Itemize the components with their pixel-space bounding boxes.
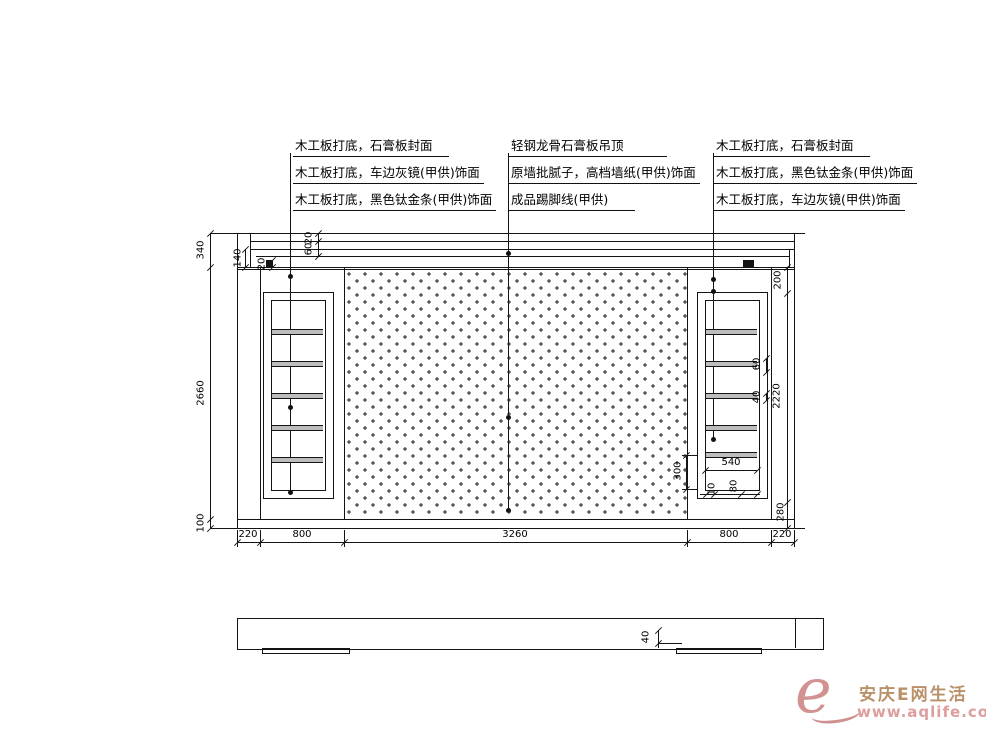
titanium-strip-bar — [272, 393, 323, 399]
drawing-line — [237, 233, 238, 528]
annotation-left-2: 木工板打底，车边灰镜(甲供)饰面 — [293, 164, 484, 184]
dim-200: 200 — [773, 270, 784, 289]
drawing-line — [237, 267, 795, 268]
annotation-left-1: 木工板打底，石膏板封面 — [293, 137, 449, 157]
wallpaper-pattern — [345, 271, 687, 517]
drawing-line — [250, 233, 251, 267]
titanium-strip-bar — [272, 425, 323, 431]
annotation-left-3: 木工板打底，黑色钛金条(甲供)饰面 — [293, 191, 496, 211]
annotation-middle-1: 轻钢龙骨石膏板吊顶 — [509, 137, 667, 157]
drawing-line — [344, 530, 345, 547]
dim-80: 80 — [729, 480, 740, 493]
drawing-line — [787, 267, 788, 528]
drawing-line — [687, 267, 688, 519]
titanium-strip-bar — [706, 393, 757, 399]
dim-100: 100 — [196, 513, 207, 532]
dim-220-right: 220 — [772, 529, 791, 540]
dim-3260: 3260 — [502, 529, 527, 540]
drawing-line — [237, 519, 795, 520]
leader-dot — [506, 251, 511, 256]
watermark: e 安庆E网生活 www.aqlife.com — [795, 666, 983, 728]
annotation-middle-3: 成品踢脚线(甲供) — [509, 191, 635, 211]
dim-10: 10 — [707, 483, 718, 496]
titanium-strip-bar — [706, 425, 757, 431]
dim-340: 340 — [196, 240, 207, 259]
plan-ledge-right — [676, 648, 762, 654]
drawing-line — [794, 530, 795, 547]
elevation-drawing-canvas: 木工板打底，石膏板封面 木工板打底，车边灰镜(甲供)饰面 木工板打底，黑色钛金条… — [0, 0, 986, 731]
titanium-strip-bar — [272, 361, 323, 367]
plan-strip — [237, 618, 824, 650]
dim-40-panel: 40 — [752, 391, 763, 404]
drawing-line — [256, 256, 789, 257]
dim-280: 280 — [776, 502, 787, 521]
dim-220-left: 220 — [238, 529, 257, 540]
drawing-line — [794, 233, 795, 528]
titanium-strip-bar — [706, 361, 757, 367]
dim-20-step: 20 — [257, 258, 268, 271]
dim-800-right: 800 — [719, 529, 738, 540]
titanium-strip-bar — [706, 329, 757, 335]
drawing-line — [237, 269, 795, 270]
annotation-right-3: 木工板打底，车边灰镜(甲供)饰面 — [714, 191, 905, 211]
dim-800-left: 800 — [292, 529, 311, 540]
annotation-middle-2: 原墙批腻子，高档墙纸(甲供)饰面 — [509, 164, 700, 184]
annotation-right-2: 木工板打底，黑色钛金条(甲供)饰面 — [714, 164, 917, 184]
watermark-site-name: 安庆E网生活 — [859, 680, 968, 705]
dim-40-plan: 40 — [641, 631, 652, 644]
dim-2660: 2660 — [196, 380, 207, 405]
drawing-line — [237, 542, 794, 543]
leader-dot — [288, 274, 293, 279]
watermark-url: www.aqlife.com — [857, 703, 986, 721]
dim-60-band: 60 — [304, 243, 315, 256]
drawing-line — [210, 233, 211, 528]
drawing-line — [245, 249, 246, 267]
drawing-line — [318, 233, 319, 256]
drawing-line — [260, 267, 261, 519]
leader-dot — [711, 277, 716, 282]
profile-block — [743, 260, 754, 268]
dim-140: 140 — [233, 248, 244, 267]
dim-300: 300 — [673, 461, 684, 480]
dim-2220: 2220 — [772, 383, 783, 408]
dim-60-panel: 60 — [752, 358, 763, 371]
titanium-strip-bar — [272, 457, 323, 463]
dim-540: 540 — [721, 457, 740, 468]
plan-ledge-left — [262, 648, 350, 654]
annotation-right-1: 木工板打底，石膏板封面 — [714, 137, 870, 157]
drawing-line — [687, 530, 688, 547]
drawing-line — [260, 530, 261, 547]
titanium-strip-bar — [272, 329, 323, 335]
